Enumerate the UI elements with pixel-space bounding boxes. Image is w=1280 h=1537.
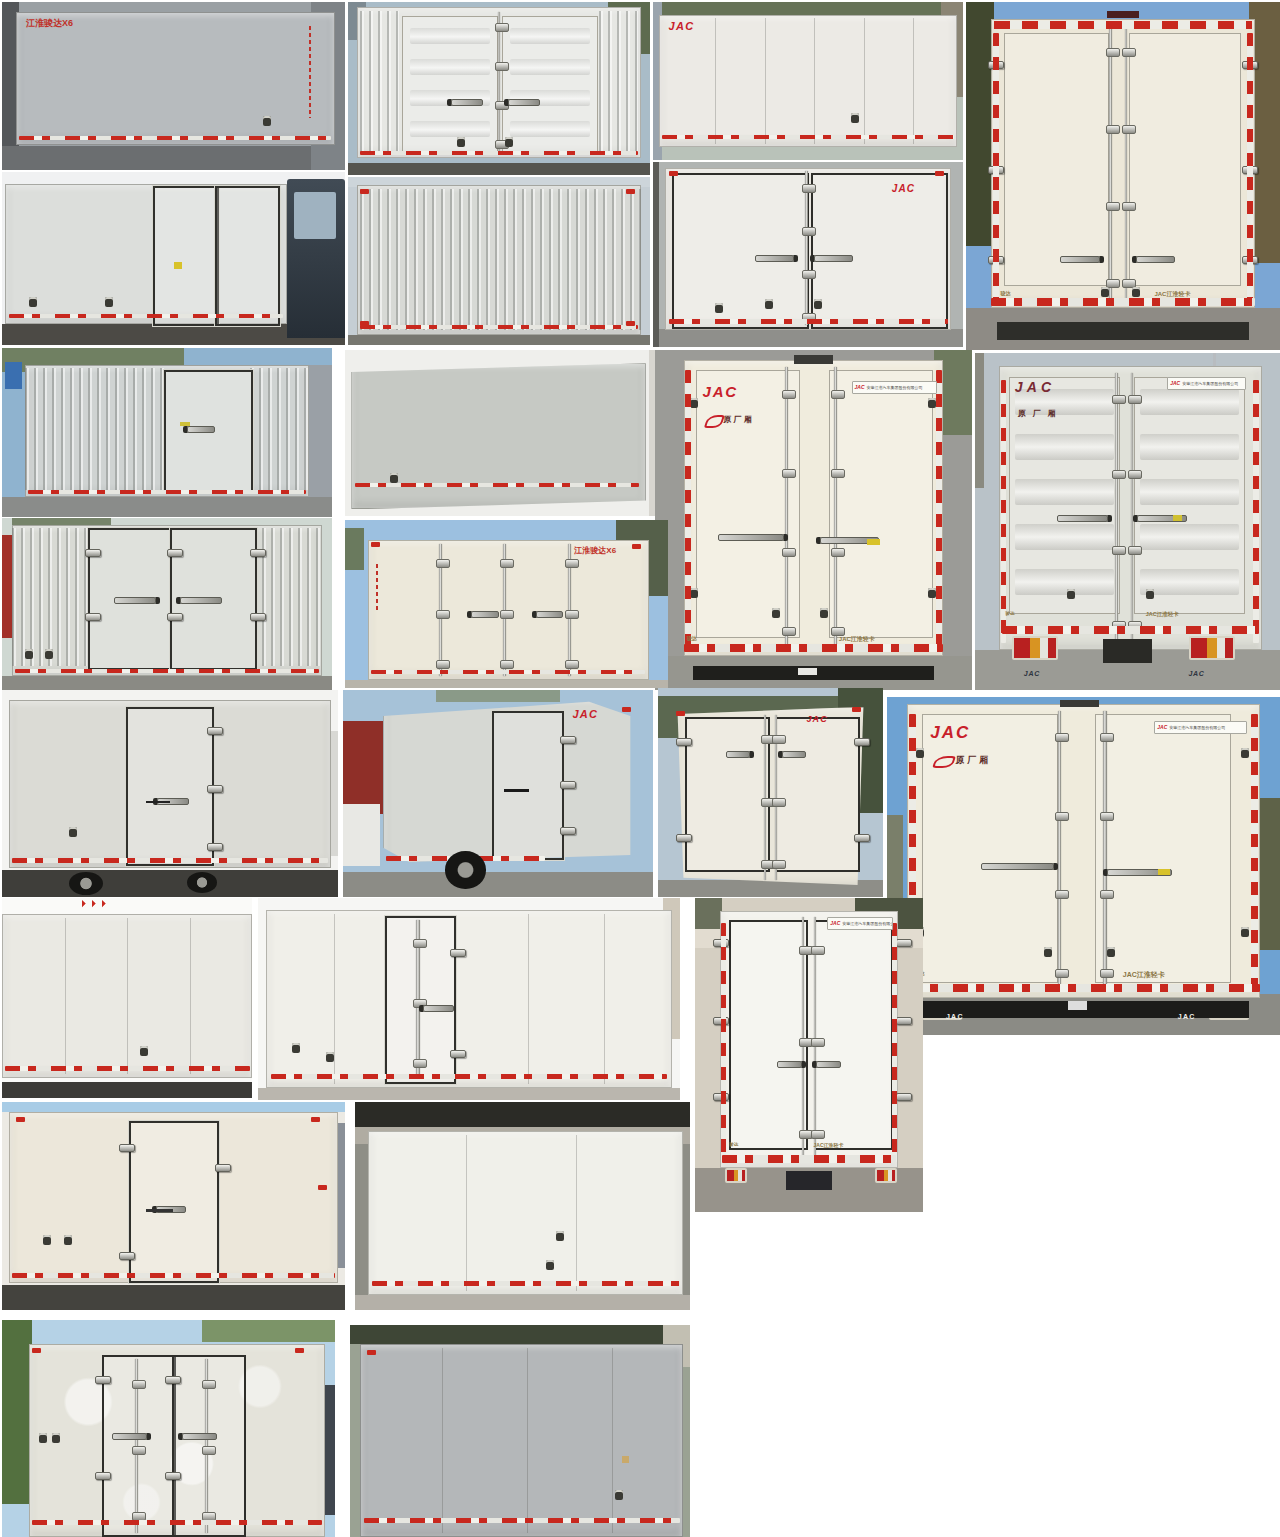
door-panel-recess <box>1015 569 1114 595</box>
hinge-knuckle <box>802 270 816 279</box>
scenery-backdrop <box>653 162 659 347</box>
scenery-ground <box>2 497 332 517</box>
sticker <box>1158 869 1170 875</box>
brand-text: JAC江淮轻卡 <box>814 1143 844 1148</box>
lock-rod <box>1058 711 1062 992</box>
reflective-strip-top <box>994 21 1252 29</box>
lock-catch <box>916 748 924 758</box>
hinge-knuckle <box>1055 890 1069 899</box>
latch-handle <box>1057 515 1108 522</box>
wheel <box>69 872 103 895</box>
reflector-strip-bottom <box>271 1074 668 1079</box>
photo-side-box-ribbed <box>348 177 650 345</box>
manufacturer-text: 安徽江淮汽车集团股份有限公司 <box>1182 381 1238 386</box>
photo-side-panel-plain <box>2 898 252 1098</box>
jac-logo-small: JAC <box>1157 724 1167 730</box>
lock-catch <box>1044 947 1052 957</box>
hinge-knuckle <box>202 1380 216 1389</box>
hinge-knuckle <box>1100 733 1114 742</box>
jac-logo: JAC <box>669 21 695 32</box>
latch-handle <box>114 597 156 604</box>
lock-catch <box>505 137 513 147</box>
scenery-trees <box>436 690 560 702</box>
reflector-strip-bottom <box>19 136 331 140</box>
door-hinge <box>165 1376 181 1384</box>
lock-catch <box>1241 748 1249 758</box>
handle-bar <box>504 789 529 792</box>
cargo-door <box>922 714 1058 983</box>
photo-rear-box-tall-cream: 骏达JAC江淮轻卡 <box>966 2 1280 350</box>
door-hinge <box>167 613 183 621</box>
brand-text: 骏达 <box>1006 612 1015 617</box>
brand-text: 骏达 <box>687 636 697 641</box>
reflector-strip-bottom <box>991 298 1255 306</box>
panel-seam <box>334 914 335 1084</box>
bumper <box>997 322 1248 339</box>
jac-logo: JAC <box>930 724 970 741</box>
scenery-backdrop <box>325 1385 335 1515</box>
reflector-strip-bottom <box>722 1155 895 1163</box>
wheel <box>187 872 217 893</box>
latch-handle <box>1060 256 1100 263</box>
brand-text: JAC江淮轻卡 <box>1123 971 1165 978</box>
reflector-strip-bottom <box>12 1273 334 1278</box>
lock-catch <box>25 649 33 659</box>
lock-catch <box>1107 947 1115 957</box>
sticker <box>82 900 86 912</box>
reflector-strip-bottom <box>360 151 638 155</box>
panel-seam <box>612 1348 613 1532</box>
scenery-backdrop <box>2 535 12 638</box>
marker-lamp <box>1107 11 1138 18</box>
hinge-knuckle <box>802 184 816 193</box>
latch-handle <box>180 597 222 604</box>
corner-reflector <box>295 1348 304 1353</box>
tail-light <box>1189 636 1236 660</box>
door-hinge <box>450 949 466 957</box>
brand-text: JAC江淮轻卡 <box>1146 612 1179 618</box>
panel-seam <box>814 18 815 144</box>
door-panel-recess <box>410 28 491 44</box>
reflector-strip-bottom <box>360 325 638 329</box>
truck-box <box>659 15 957 148</box>
scenery-ground <box>2 676 332 690</box>
reflector-strip-bottom <box>32 1520 322 1525</box>
vertical-slogan <box>376 564 378 611</box>
hinge-knuckle <box>1112 546 1126 555</box>
scenery-sign <box>5 362 22 389</box>
lock-catch <box>1132 287 1140 297</box>
hinge-knuckle <box>495 23 509 32</box>
door-panel-recess <box>1140 434 1239 460</box>
reflector-strip-bottom <box>28 490 305 494</box>
photo-side-panel-silver <box>350 1325 690 1537</box>
reflector-strip-bottom <box>669 319 948 323</box>
reflector-strip-bottom <box>1002 626 1258 634</box>
jac-logo: JAC <box>892 184 916 194</box>
lock-rod <box>1109 26 1112 301</box>
lock-catch <box>45 649 53 659</box>
cab-window <box>294 192 336 240</box>
latch-handle <box>1136 256 1176 263</box>
lock-catch <box>263 116 271 126</box>
lock-catch <box>1146 589 1154 599</box>
box-type-text: 原厂厢 <box>723 416 754 424</box>
jac-logo-small: JAC <box>1170 380 1180 386</box>
lock-catch <box>292 1043 300 1053</box>
lock-catch <box>64 1235 72 1245</box>
hinge-knuckle <box>1106 125 1120 134</box>
sticker <box>798 668 817 675</box>
hinge-knuckle <box>1128 470 1142 479</box>
cargo-door <box>729 920 808 1150</box>
panel-seam <box>466 1135 467 1291</box>
jac-logo: JAC <box>807 715 828 724</box>
lock-catch <box>140 1046 148 1056</box>
reflective-strip <box>685 370 691 649</box>
scenery-ground <box>355 1295 690 1310</box>
truck-box <box>351 363 645 509</box>
hinge-knuckle <box>831 627 845 636</box>
door-panel-recess <box>510 59 591 75</box>
lock-catch <box>814 299 822 309</box>
box-type-text: 原 厂 厢 <box>1018 410 1058 418</box>
hinge-knuckle <box>1122 202 1136 211</box>
hinge-knuckle <box>782 627 796 636</box>
corner-reflector <box>367 1350 376 1355</box>
door-hinge <box>119 1252 135 1260</box>
brand-text: JAC江淮轻卡 <box>839 636 875 642</box>
hinge-knuckle <box>495 101 509 110</box>
lock-catch <box>326 1052 334 1062</box>
photo-side-box-double-doors <box>2 1320 335 1537</box>
latch-handle <box>112 1433 147 1440</box>
jac-logo: JAC <box>703 384 738 399</box>
reflector-strip-bottom <box>355 483 640 487</box>
cargo-door <box>829 370 932 637</box>
hinge-knuckle <box>1055 812 1069 821</box>
door-hinge <box>560 736 576 744</box>
wheel <box>445 851 485 888</box>
latch-handle <box>981 863 1054 870</box>
hinge-knuckle <box>811 946 825 955</box>
corner-reflector <box>360 321 369 326</box>
reflector-strip-bottom <box>9 314 283 318</box>
door-hinge <box>250 613 266 621</box>
sticker <box>1173 515 1182 522</box>
scenery-trees <box>2 1320 32 1504</box>
door-panel-recess <box>1140 569 1239 595</box>
cargo-door <box>402 16 498 153</box>
door-hinge <box>896 1017 912 1025</box>
door-hinge <box>896 939 912 947</box>
lock-catch <box>390 473 398 483</box>
cargo-door <box>126 707 214 866</box>
mudflap-text: JAC <box>1178 1013 1196 1020</box>
lock-catch <box>1241 927 1249 937</box>
hinge-knuckle <box>831 469 845 478</box>
photo-side-box-ribbed-doors <box>2 518 332 690</box>
scenery-ground <box>343 872 653 897</box>
cargo-door <box>129 1121 219 1283</box>
sticker <box>1068 1001 1088 1009</box>
jac-logo: JAC <box>1024 670 1040 677</box>
panel-seam <box>864 18 865 144</box>
latch-handle <box>814 255 853 262</box>
cargo-door <box>153 186 219 327</box>
lock-rod <box>834 367 837 649</box>
reflective-strip <box>1253 380 1258 643</box>
corner-reflector <box>852 707 861 712</box>
panel-seam <box>604 914 605 1084</box>
latch-handle <box>508 99 540 106</box>
scenery-trees <box>345 528 364 570</box>
lock-catch <box>29 297 37 307</box>
door-hinge <box>676 834 692 842</box>
tail-light <box>875 1168 897 1183</box>
photo-rear-box-jac-large: JAC原厂厢JAC安徽江淮汽车集团股份有限公司骏达JAC江淮轻卡JACJAC <box>887 697 1280 1035</box>
manufacturer-text: 安徽江淮汽车集团股份有限公司 <box>842 921 892 926</box>
lock-catch <box>69 827 77 837</box>
reflector-strip-bottom <box>371 670 646 674</box>
hinge-knuckle <box>772 860 786 869</box>
corner-reflector <box>318 1185 327 1190</box>
lock-catch <box>928 588 936 598</box>
photo-side-box-jac: JAC <box>653 2 963 160</box>
door-hinge <box>85 549 101 557</box>
scenery-backdrop <box>343 804 380 866</box>
sticker <box>622 1456 629 1462</box>
lock-catch <box>772 608 780 618</box>
panel-seam <box>65 918 66 1074</box>
hinge-knuckle <box>831 548 845 557</box>
latch-handle <box>816 1061 841 1068</box>
hinge-knuckle <box>436 660 450 669</box>
truck-box <box>360 1344 683 1537</box>
reflective-strip <box>892 923 897 1162</box>
scenery-ground <box>258 1088 680 1100</box>
hinge-knuckle <box>1100 890 1114 899</box>
reflective-strip <box>1247 33 1253 301</box>
scenery-trees <box>202 1320 335 1342</box>
hinge-knuckle <box>772 735 786 744</box>
latch-handle <box>718 534 783 541</box>
corner-reflector <box>32 1348 41 1353</box>
corrugated-panel <box>360 189 641 330</box>
door-hinge <box>167 549 183 557</box>
handle-bar <box>146 1209 173 1212</box>
corner-reflector <box>622 707 631 712</box>
reflector-strip-bottom <box>684 644 944 652</box>
hinge-knuckle <box>132 1380 146 1389</box>
sticker <box>102 900 106 912</box>
corner-reflector <box>676 711 685 716</box>
hinge-knuckle <box>782 469 796 478</box>
hinge-knuckle <box>500 559 514 568</box>
hinge-knuckle <box>1055 969 1069 978</box>
photo-side-box-center-door <box>2 690 338 897</box>
photo-side-box-gray: 江淮骏达X6 <box>2 2 345 170</box>
corner-reflector <box>626 321 635 326</box>
door-panel-recess <box>1140 479 1239 505</box>
lock-rod <box>1131 373 1134 643</box>
door-hinge <box>250 549 266 557</box>
hinge-knuckle <box>1112 395 1126 404</box>
brand-text: 骏达 <box>729 1143 738 1148</box>
corner-reflector <box>371 542 380 547</box>
corner-reflector <box>360 189 369 194</box>
sticker <box>174 262 183 269</box>
reflector-strip-bottom <box>5 1066 250 1071</box>
door-hinge <box>854 834 870 842</box>
latch-handle <box>471 611 499 618</box>
license-plate <box>1103 639 1152 663</box>
scenery-ground <box>348 163 650 175</box>
latch-handle <box>755 255 794 262</box>
hinge-knuckle <box>500 660 514 669</box>
lock-catch <box>615 1490 623 1500</box>
door-panel-recess <box>410 59 491 75</box>
latch-handle <box>782 751 807 758</box>
scenery-backdrop <box>343 721 383 814</box>
lock-rod <box>498 12 501 150</box>
hinge-knuckle <box>413 1059 427 1068</box>
door-hinge <box>165 1472 181 1480</box>
hinge-knuckle <box>782 548 796 557</box>
cargo-door <box>811 173 948 329</box>
jac-logo: JAC <box>1015 380 1056 394</box>
photo-side-box-ribbed-door <box>2 348 332 517</box>
latch-handle <box>451 99 483 106</box>
hinge-knuckle <box>565 610 579 619</box>
license-plate <box>786 1171 832 1190</box>
lock-catch <box>715 303 723 313</box>
photo-angled-box-jac: JAC <box>343 690 653 897</box>
panel-seam <box>715 18 716 144</box>
photo-side-panel-plain-2 <box>355 1102 690 1310</box>
corner-reflector <box>935 171 944 176</box>
door-panel-recess <box>1015 479 1114 505</box>
hinge-knuckle <box>132 1446 146 1455</box>
door-panel-recess <box>410 121 491 137</box>
door-hinge <box>215 1164 231 1172</box>
cargo-door <box>215 186 281 327</box>
hinge-knuckle <box>1055 733 1069 742</box>
photo-side-box-right-door <box>258 898 680 1100</box>
hinge-knuckle <box>565 660 579 669</box>
reflective-strip <box>721 923 726 1162</box>
reflective-strip <box>936 370 942 649</box>
hinge-knuckle <box>802 227 816 236</box>
cargo-door <box>1004 33 1110 286</box>
door-panel-recess <box>1140 524 1239 550</box>
hinge-knuckle <box>436 610 450 619</box>
reflective-strip <box>1251 714 1258 991</box>
lock-catch <box>1101 287 1109 297</box>
hinge-knuckle <box>1128 546 1142 555</box>
photo-rear-box-ribbed-branded: JAC原 厂 厢JAC安徽江淮汽车集团股份有限公司骏达JAC江淮轻卡JACJAC <box>975 353 1280 690</box>
cargo-door <box>492 711 564 860</box>
door-hinge <box>207 843 223 851</box>
hinge-knuckle <box>495 62 509 71</box>
reflective-strip <box>1001 380 1006 643</box>
brand-text: JAC江淮轻卡 <box>1154 291 1190 297</box>
lock-catch <box>105 297 113 307</box>
photo-rear-doors-tall: JAC安徽江淮汽车集团股份有限公司骏达JAC江淮轻卡 <box>695 898 923 1212</box>
reflector-strip-bottom <box>372 1281 680 1286</box>
scenery-cab <box>309 365 332 497</box>
scenery-trees <box>966 2 994 246</box>
lock-catch <box>546 1260 554 1270</box>
manufacturer-text: 安徽江淮汽车集团股份有限公司 <box>867 385 923 390</box>
door-panel-recess <box>1015 524 1114 550</box>
door-panel-recess <box>510 28 591 44</box>
cargo-door <box>685 717 770 871</box>
scenery-ground <box>2 146 345 170</box>
door-hinge <box>560 827 576 835</box>
scenery-backdrop <box>355 1102 690 1127</box>
lock-catch <box>556 1231 564 1241</box>
cargo-door <box>1129 33 1241 286</box>
scenery-ground <box>348 335 650 345</box>
door-panel-recess <box>1015 434 1114 460</box>
scenery-ground <box>2 1082 252 1098</box>
hinge-knuckle <box>1112 470 1126 479</box>
scenery-trees <box>350 1325 690 1344</box>
model-text: 江淮骏达X6 <box>26 19 73 28</box>
photo-collage: 江淮骏达X6JAC骏达JAC江淮轻卡JACJAC原厂厢JAC安徽江淮汽车集团股份… <box>0 0 1280 1537</box>
hinge-knuckle <box>1128 395 1142 404</box>
reflective-strip <box>993 33 999 301</box>
door-hinge <box>896 1093 912 1101</box>
sticker <box>180 422 190 425</box>
photo-rear-box-wide <box>348 2 650 175</box>
hinge-knuckle <box>1106 48 1120 57</box>
lock-catch <box>43 1235 51 1245</box>
lock-catch <box>39 1433 47 1443</box>
lock-catch <box>52 1433 60 1443</box>
tail-light <box>725 1168 747 1183</box>
hinge-knuckle <box>1100 969 1114 978</box>
hinge-knuckle <box>413 939 427 948</box>
cargo-door <box>502 16 598 153</box>
corner-reflector <box>311 1117 320 1122</box>
door-panel-recess <box>510 121 591 137</box>
lock-catch <box>690 588 698 598</box>
cargo-door <box>814 920 893 1150</box>
reflector-strip-bottom <box>15 669 319 673</box>
latch-handle <box>182 1433 217 1440</box>
door-hinge <box>560 781 576 789</box>
hinge-knuckle <box>202 1446 216 1455</box>
lock-catch <box>765 299 773 309</box>
door-hinge <box>95 1376 111 1384</box>
photo-rear-doors-box: JAC <box>653 162 963 347</box>
lock-catch <box>851 113 859 123</box>
manufacturer-plate: JAC安徽江淮汽车集团股份有限公司 <box>852 381 937 394</box>
scenery-ground <box>653 329 963 348</box>
truck-cab <box>287 179 345 338</box>
manufacturer-plate: JAC安徽江淮汽车集团股份有限公司 <box>1154 721 1246 734</box>
corrugated-panel <box>12 528 88 666</box>
manufacturer-plate: JAC安徽江淮汽车集团股份有限公司 <box>827 917 892 930</box>
corner-reflector <box>626 189 635 194</box>
jac-logo-small: JAC <box>855 384 865 390</box>
latch-handle <box>777 1061 802 1068</box>
truck-box <box>368 1131 683 1295</box>
manufacturer-plate: JAC安徽江淮汽车集团股份有限公司 <box>1167 377 1246 390</box>
photo-side-box-with-cab <box>2 172 345 345</box>
